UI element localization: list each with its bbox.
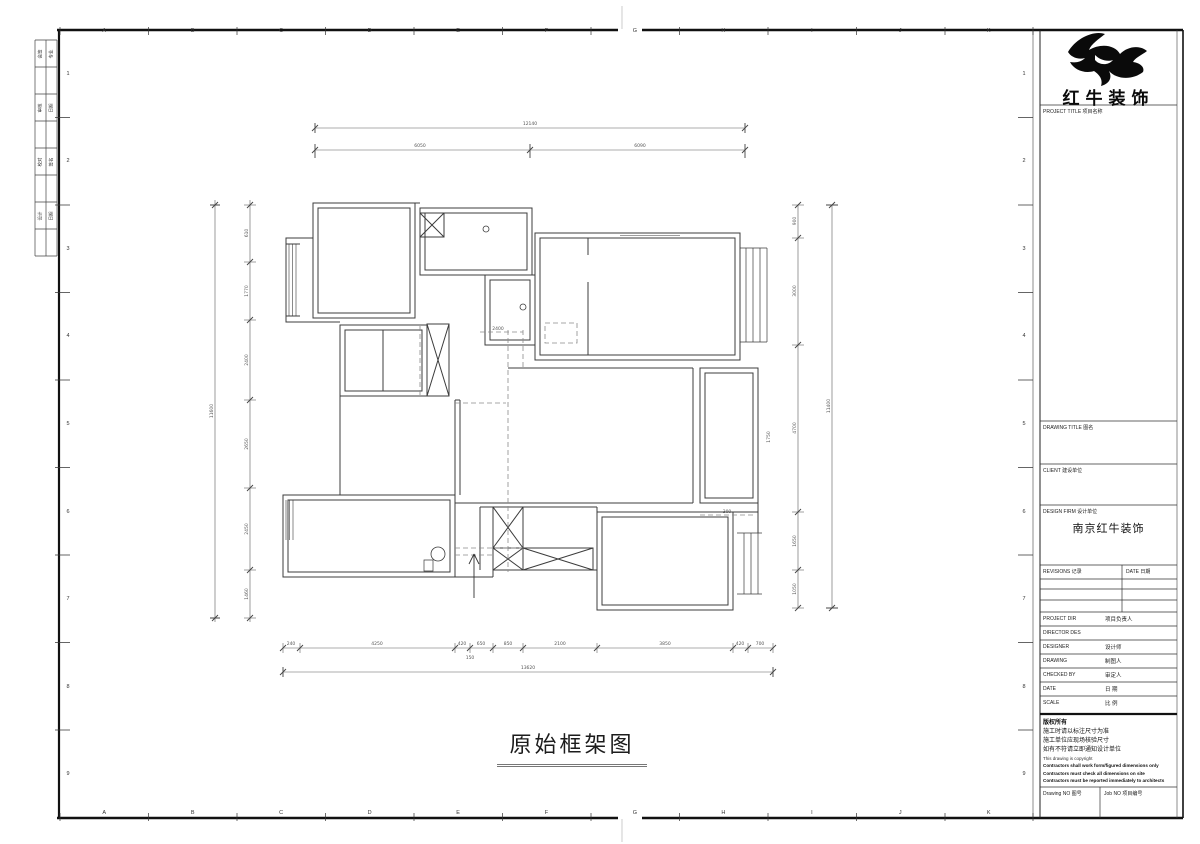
dim-label: 4250 bbox=[371, 641, 383, 647]
dim-label: 2400 bbox=[244, 354, 250, 366]
dim-label: 3850 bbox=[659, 641, 671, 647]
ruler-number: 3 bbox=[63, 205, 73, 293]
dim-label: 2650 bbox=[244, 438, 250, 450]
row-label-en: DESIGNER bbox=[1043, 644, 1105, 650]
ruler-number: 7 bbox=[1019, 555, 1029, 643]
plan-annotation: 1750 bbox=[766, 431, 772, 443]
ruler-letter: B bbox=[148, 808, 236, 818]
dim-label: 900 bbox=[792, 217, 798, 226]
signoff-cell-label: 校对 bbox=[38, 157, 44, 166]
ruler-letter: J bbox=[856, 808, 944, 818]
dim-label: 12140 bbox=[523, 121, 537, 127]
copyright-line: 施工时请以标注尺寸为准 bbox=[1043, 728, 1175, 737]
plan-annotation: 2400 bbox=[492, 326, 504, 332]
client-label: CLIENT 建设单位 bbox=[1043, 467, 1082, 474]
ruler-number: 6 bbox=[63, 468, 73, 556]
ruler-letter: F bbox=[502, 808, 590, 818]
dimension-lines bbox=[215, 128, 832, 672]
ruler-ticks bbox=[55, 27, 1033, 821]
ruler-letter: D bbox=[325, 26, 413, 36]
ruler-letter: H bbox=[679, 26, 767, 36]
plan-fixtures bbox=[431, 226, 526, 561]
copyright-line: Contractors shall work form/figured dime… bbox=[1043, 762, 1175, 770]
ruler-number: 2 bbox=[1019, 118, 1029, 206]
row-label-en: DRAWING bbox=[1043, 658, 1105, 664]
ruler-letter: C bbox=[237, 26, 325, 36]
title-block-row: PROJECT DIR 项目负责人 bbox=[1043, 612, 1175, 626]
ruler-number: 3 bbox=[1019, 205, 1029, 293]
ruler-number: 4 bbox=[63, 293, 73, 381]
signoff-row: 设计 日期 bbox=[35, 202, 57, 229]
title-block-rows: PROJECT DIR 项目负责人 DIRECTOR DES DESIGNER … bbox=[1043, 612, 1175, 710]
ruler-letter: F bbox=[502, 26, 590, 36]
design-firm-value: 南京红牛装饰 bbox=[1040, 520, 1177, 536]
dim-label: 3000 bbox=[792, 285, 798, 297]
ruler-letters-top: ABCDEFGHIJK bbox=[60, 26, 1033, 36]
dim-label: 2100 bbox=[554, 641, 566, 647]
entry-arrow bbox=[469, 554, 479, 598]
row-label-en: SCALE bbox=[1043, 700, 1105, 706]
ruler-letter: H bbox=[679, 808, 767, 818]
signoff-row bbox=[35, 121, 57, 148]
dim-label: 2450 bbox=[244, 523, 250, 535]
ruler-letter: A bbox=[60, 808, 148, 818]
ruler-number: 5 bbox=[63, 380, 73, 468]
dimension-labels: 12140 6050 6090 11600 610 1770 2400 2650… bbox=[209, 121, 832, 671]
ruler-number: 2 bbox=[63, 118, 73, 206]
copyright-line: Contractors must check all dimensions on… bbox=[1043, 770, 1175, 778]
signoff-row bbox=[35, 67, 57, 94]
signoff-cell-label: 专业 bbox=[49, 49, 55, 58]
signoff-row: 审核 日期 bbox=[35, 94, 57, 121]
title-block-row: SCALE 比 例 bbox=[1043, 696, 1175, 710]
title-block-row: DESIGNER 设计师 bbox=[1043, 640, 1175, 654]
ruler-number: 8 bbox=[63, 643, 73, 731]
ruler-number: 1 bbox=[1019, 30, 1029, 118]
ruler-letter: A bbox=[60, 26, 148, 36]
ruler-number: 9 bbox=[1019, 731, 1029, 819]
row-label-cn: 比 例 bbox=[1105, 699, 1118, 707]
date-column-label: DATE 日期 bbox=[1126, 568, 1150, 575]
dim-label: 700 bbox=[756, 641, 765, 647]
copyright-line: 版权所有 bbox=[1043, 719, 1175, 728]
signoff-strip: 会签 专业 审核 日期 校对 签名 设计 日期 bbox=[35, 40, 57, 256]
ruler-number: 5 bbox=[1019, 380, 1029, 468]
dim-label: 1460 bbox=[244, 588, 250, 600]
dim-label: 420 bbox=[736, 641, 745, 647]
ruler-letter: E bbox=[414, 26, 502, 36]
copyright-line: 施工单位应现场核验尺寸 bbox=[1043, 737, 1175, 746]
ruler-letter: G bbox=[591, 808, 679, 818]
dim-label: 240 bbox=[287, 641, 296, 647]
ruler-letters-bottom: ABCDEFGHIJK bbox=[60, 808, 1033, 818]
dim-label: 610 bbox=[244, 229, 250, 238]
ruler-number: 7 bbox=[63, 555, 73, 643]
signoff-cell-label: 签名 bbox=[49, 157, 55, 166]
revisions-label: REVISIONS 记录 bbox=[1043, 568, 1082, 575]
ruler-number: 9 bbox=[63, 731, 73, 819]
signoff-row bbox=[35, 229, 57, 256]
ruler-letter: G bbox=[591, 26, 679, 36]
signoff-row: 会签 专业 bbox=[35, 40, 57, 67]
dim-label: 850 bbox=[504, 641, 513, 647]
ruler-letter: I bbox=[768, 808, 856, 818]
signoff-cell-label: 日期 bbox=[49, 103, 55, 112]
ruler-letter: J bbox=[856, 26, 944, 36]
ruler-number: 4 bbox=[1019, 293, 1029, 381]
signoff-cell-label: 设计 bbox=[38, 211, 44, 220]
signoff-row: 校对 签名 bbox=[35, 148, 57, 175]
dim-label: 11600 bbox=[209, 404, 215, 418]
title-block-lines bbox=[1040, 105, 1177, 818]
drawing-caption: 原始框架图 bbox=[497, 727, 647, 767]
row-label-en: DATE bbox=[1043, 686, 1105, 692]
signoff-cell-label: 会签 bbox=[38, 49, 44, 58]
row-label-en: DIRECTOR DES bbox=[1043, 630, 1105, 636]
row-label-cn: 项目负责人 bbox=[1105, 615, 1133, 623]
dim-label: 150 bbox=[466, 655, 475, 661]
dim-label: 650 bbox=[477, 641, 486, 647]
ruler-number: 1 bbox=[63, 30, 73, 118]
signoff-row bbox=[35, 175, 57, 202]
signoff-cell-label: 日期 bbox=[49, 211, 55, 220]
ruler-numbers-left: 123456789 bbox=[63, 30, 73, 818]
title-block-row: DRAWING 制图人 bbox=[1043, 654, 1175, 668]
row-label-en: PROJECT DIR bbox=[1043, 616, 1105, 622]
ruler-number: 8 bbox=[1019, 643, 1029, 731]
row-label-cn: 日 期 bbox=[1105, 685, 1118, 693]
ruler-number: 6 bbox=[1019, 468, 1029, 556]
dim-label: 1650 bbox=[792, 535, 798, 547]
copyright-line: 如有不符请立即通知设计单位 bbox=[1043, 746, 1175, 755]
plan-walls bbox=[283, 203, 767, 610]
title-block-row: CHECKED BY 审定人 bbox=[1043, 668, 1175, 682]
rednew-bull-logo bbox=[1068, 33, 1147, 86]
row-label-cn: 制图人 bbox=[1105, 657, 1122, 665]
drawing-no-label: Drawing NO 图号 bbox=[1043, 790, 1082, 797]
dim-label: 13620 bbox=[521, 665, 535, 671]
signoff-cell-label: 审核 bbox=[38, 103, 44, 112]
row-label-cn: 设计师 bbox=[1105, 643, 1122, 651]
title-block-row: DIRECTOR DES bbox=[1043, 626, 1175, 640]
dim-label: 6050 bbox=[414, 143, 426, 149]
row-label-en: CHECKED BY bbox=[1043, 672, 1105, 678]
ruler-letter: I bbox=[768, 26, 856, 36]
dim-label: 420 bbox=[458, 641, 467, 647]
drawing-sheet: 12140 6050 6090 11600 610 1770 2400 2650… bbox=[0, 0, 1200, 844]
ruler-numbers-right: 123456789 bbox=[1019, 30, 1029, 818]
dim-label: 1770 bbox=[244, 285, 250, 297]
ruler-letter: E bbox=[414, 808, 502, 818]
job-no-label: Job NO 项目编号 bbox=[1104, 790, 1142, 797]
copyright-line: Contractors must be reported immediately… bbox=[1043, 777, 1175, 785]
dim-label: 11400 bbox=[826, 399, 832, 413]
brand-name: 红牛装饰 bbox=[1040, 84, 1177, 109]
ruler-letter: D bbox=[325, 808, 413, 818]
sheet-frame bbox=[57, 6, 1183, 842]
row-label-cn: 审定人 bbox=[1105, 671, 1122, 679]
title-block-row: DATE 日 期 bbox=[1043, 682, 1175, 696]
ruler-letter: B bbox=[148, 26, 236, 36]
dim-label: 4700 bbox=[792, 422, 798, 434]
design-firm-label: DESIGN FIRM 设计单位 bbox=[1043, 508, 1097, 515]
drawing-title-label: DRAWING TITLE 图名 bbox=[1043, 424, 1093, 431]
copyright-block: 版权所有施工时请以标注尺寸为准施工单位应现场核验尺寸如有不符请立即通知设计单位T… bbox=[1043, 719, 1175, 785]
copyright-line: This drawing is copyright bbox=[1043, 755, 1175, 762]
dim-label: 6090 bbox=[634, 143, 646, 149]
dim-label: 1050 bbox=[792, 583, 798, 595]
plan-annotation: 300 bbox=[723, 509, 732, 515]
project-title-label: PROJECT TITLE 项目名称 bbox=[1043, 108, 1103, 115]
ruler-letter: C bbox=[237, 808, 325, 818]
